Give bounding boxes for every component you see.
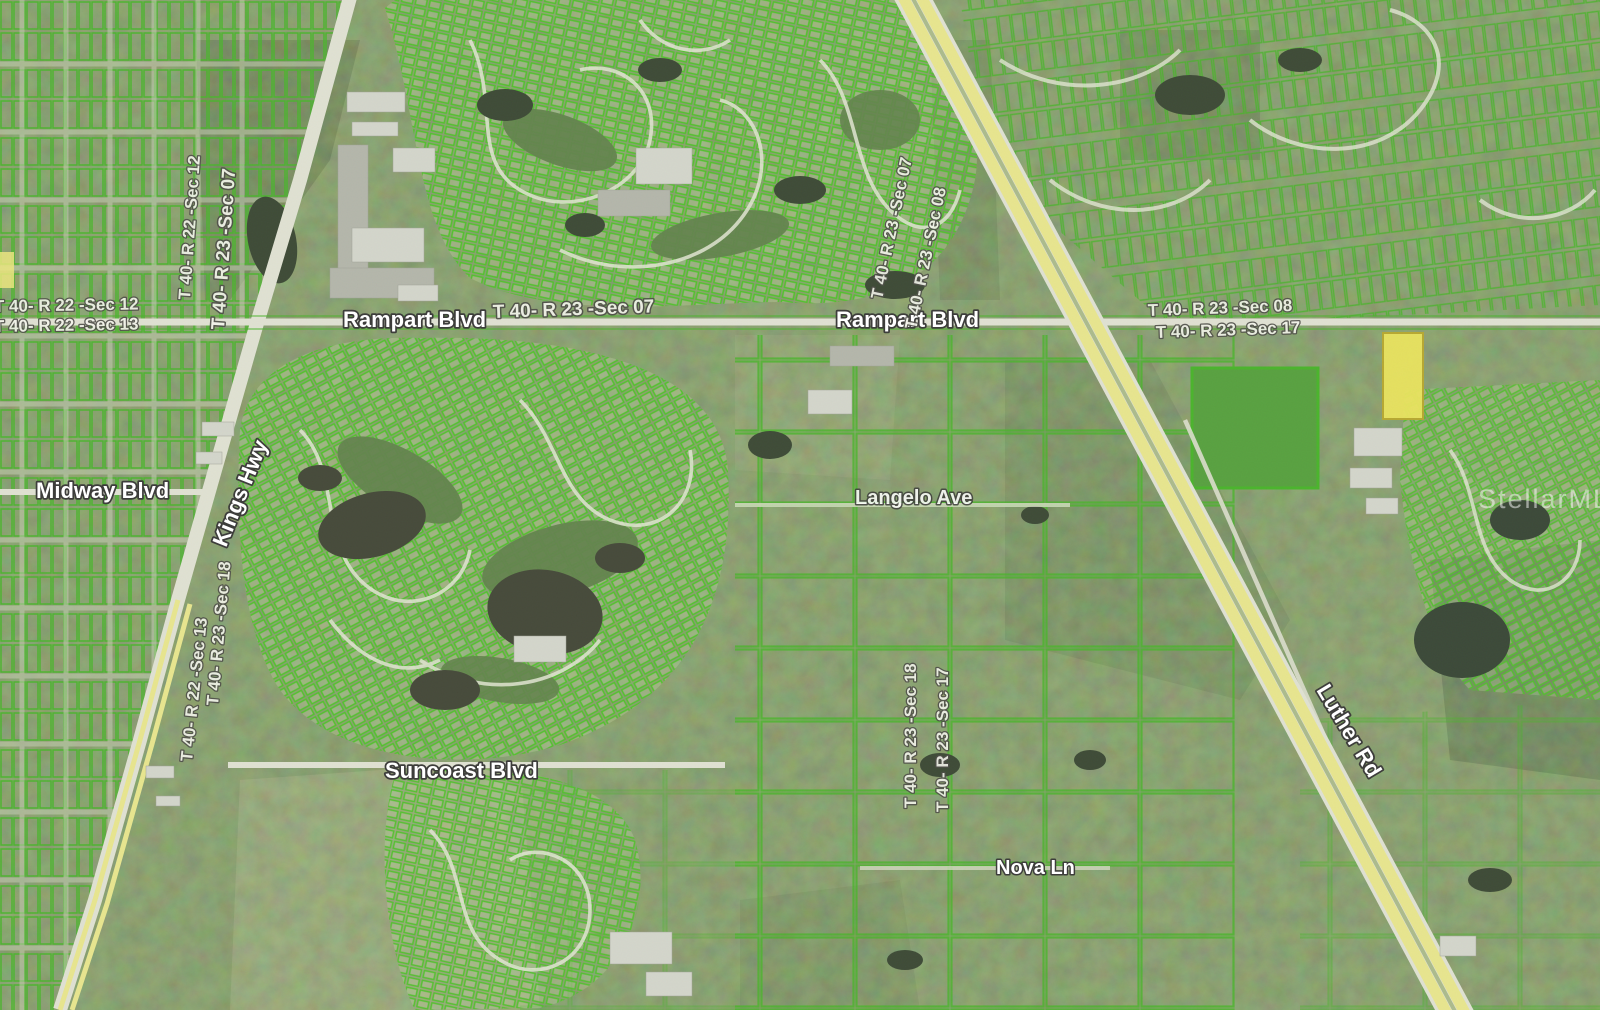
map-canvas: Rampart Blvd Rampart Blvd Midway Blvd Su… [0,0,1600,1010]
section-label-left-bottom: T 40- R 22 -Sec 13 [0,314,139,336]
road-label-suncoast: Suncoast Blvd [385,758,538,783]
road-label-midway: Midway Blvd [36,478,169,503]
mls-watermark: StellarMLS [1478,484,1600,514]
road-label-langelo: Langelo Ave [855,487,972,509]
road-label-rampart-west: Rampart Blvd [343,307,486,332]
section-label-mid-east: T 40- R 23 -Sec 17 [933,667,952,812]
aerial-map-image: Rampart Blvd Rampart Blvd Midway Blvd Su… [0,0,1600,1010]
section-label-left-top: T 40- R 22 -Sec 12 [0,294,139,316]
road-label-nova: Nova Ln [996,857,1075,879]
section-label-mid-west: T 40- R 23 -Sec 18 [901,663,920,808]
